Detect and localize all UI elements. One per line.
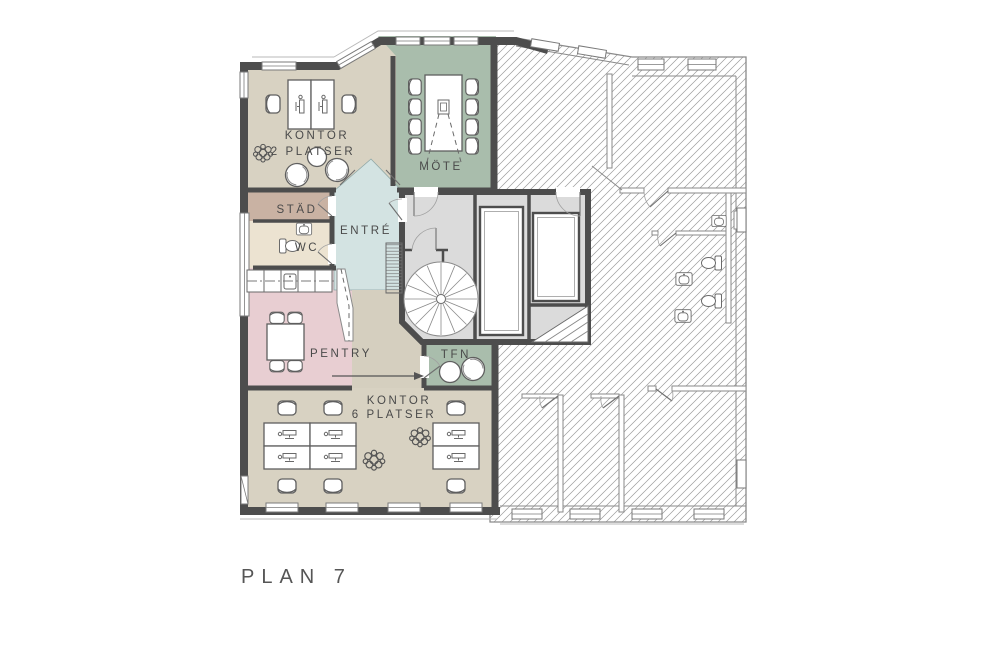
room-tfn bbox=[424, 340, 495, 388]
spiral-staircase bbox=[404, 262, 478, 336]
toilet-icon bbox=[702, 294, 722, 308]
label-stad: STÄD bbox=[276, 204, 317, 216]
elevator-2 bbox=[533, 213, 579, 301]
label-wc: WC bbox=[295, 242, 319, 254]
label-kontor6-line1: KONTOR bbox=[367, 395, 432, 407]
desk bbox=[311, 80, 334, 129]
label-mote: MÖTE bbox=[419, 161, 463, 173]
floor-plan-drawing: KONTOR 2 PLATSER MÖTE STÄD WC ENTRÉ PENT… bbox=[0, 0, 997, 649]
label-pentry: PENTRY bbox=[310, 348, 372, 360]
coat-rack bbox=[386, 243, 402, 293]
elevator-1 bbox=[480, 207, 523, 335]
label-kontor2-line1: KONTOR bbox=[285, 130, 350, 142]
kitchen-counter bbox=[247, 270, 338, 292]
sink-icon bbox=[296, 223, 311, 235]
label-tfn: TFN bbox=[441, 349, 471, 361]
plan-title: PLAN 7 bbox=[241, 566, 352, 588]
label-entre: ENTRÉ bbox=[340, 224, 392, 237]
desk bbox=[288, 80, 311, 129]
toilet-icon bbox=[702, 256, 722, 270]
sink-icon bbox=[712, 215, 726, 226]
projector-icon bbox=[438, 100, 449, 114]
sink-icon bbox=[675, 310, 691, 323]
label-kontor2-line2: 2 PLATSER bbox=[271, 146, 356, 158]
floor-plan-page: KONTOR 2 PLATSER MÖTE STÄD WC ENTRÉ PENT… bbox=[0, 0, 997, 649]
office-chair bbox=[342, 95, 356, 113]
pentry-table bbox=[267, 324, 304, 360]
office-chair bbox=[266, 95, 280, 113]
sink-icon bbox=[676, 273, 692, 286]
label-kontor6-line2: 6 PLATSER bbox=[352, 409, 437, 421]
tfn-table bbox=[440, 362, 461, 383]
